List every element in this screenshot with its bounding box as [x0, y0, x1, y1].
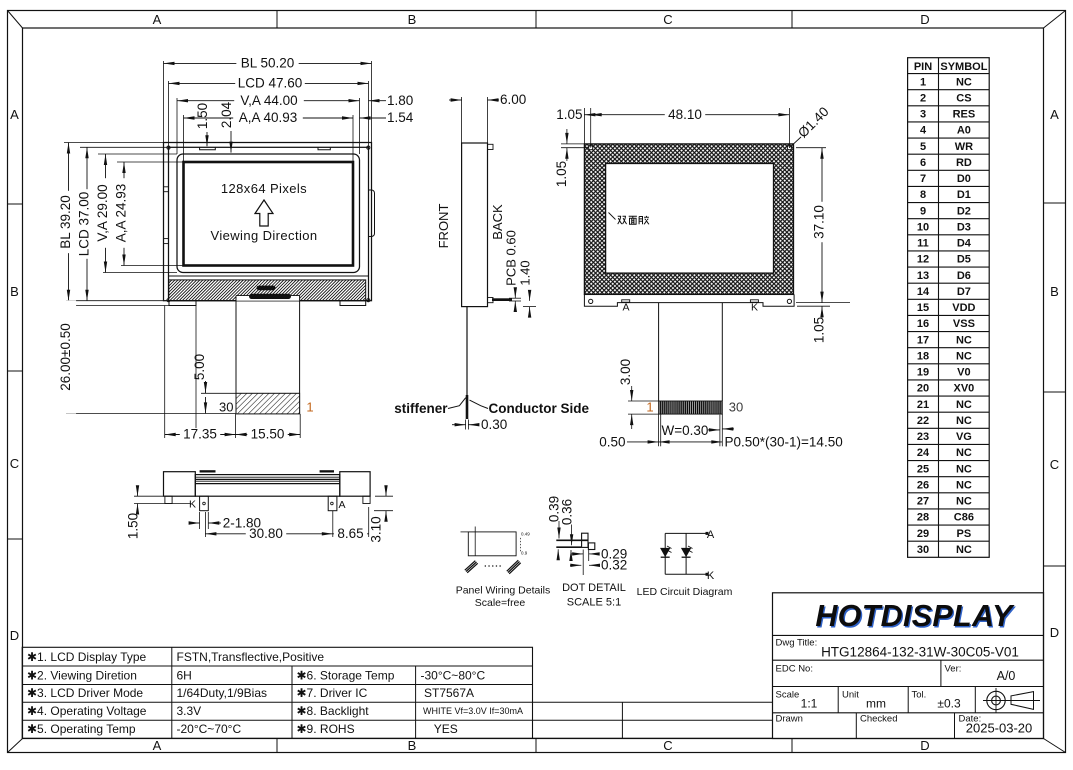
svg-text:D0: D0 — [957, 173, 971, 185]
svg-text:NC: NC — [956, 334, 972, 346]
svg-text:D5: D5 — [957, 254, 971, 266]
svg-text:Scale: Scale — [776, 690, 800, 701]
svg-text:A: A — [1050, 107, 1059, 122]
svg-text:1.50: 1.50 — [126, 513, 141, 539]
svg-text:Drawn: Drawn — [776, 714, 803, 725]
svg-text:3.10: 3.10 — [369, 516, 384, 542]
svg-text:ST7567A: ST7567A — [424, 686, 474, 700]
svg-text:✱8. Backlight: ✱8. Backlight — [297, 704, 370, 718]
svg-text:BL 50.20: BL 50.20 — [241, 56, 295, 71]
svg-text:A,A 24.93: A,A 24.93 — [114, 184, 129, 243]
svg-text:NC: NC — [956, 463, 972, 475]
svg-text:C: C — [663, 12, 672, 27]
svg-text:A0: A0 — [957, 125, 971, 137]
svg-text:3.3V: 3.3V — [177, 704, 202, 718]
svg-text:NC: NC — [956, 544, 972, 556]
svg-text:29: 29 — [917, 528, 929, 540]
svg-text:NC: NC — [956, 76, 972, 88]
svg-text:0.9: 0.9 — [521, 551, 528, 556]
svg-text:15: 15 — [917, 302, 929, 314]
svg-text:K: K — [189, 499, 196, 511]
svg-text:30.80: 30.80 — [249, 526, 283, 541]
svg-text:1.50: 1.50 — [195, 103, 210, 129]
svg-text:25: 25 — [917, 463, 929, 475]
svg-text:VDD: VDD — [952, 302, 975, 314]
svg-text:D7: D7 — [957, 286, 971, 298]
svg-text:D: D — [1050, 625, 1059, 640]
svg-text:17: 17 — [917, 334, 929, 346]
svg-text:±0.3: ±0.3 — [937, 697, 961, 711]
svg-text:1.80: 1.80 — [387, 93, 413, 108]
svg-text:0.36: 0.36 — [560, 499, 575, 525]
svg-text:6: 6 — [920, 157, 926, 169]
svg-text:HTG12864-132-31W-30C05-V01: HTG12864-132-31W-30C05-V01 — [821, 645, 1019, 660]
svg-text:C: C — [663, 738, 672, 753]
svg-text:-20°C~70°C: -20°C~70°C — [177, 722, 242, 736]
svg-text:B: B — [408, 738, 417, 753]
svg-text:23: 23 — [917, 431, 929, 443]
svg-text:FRONT: FRONT — [436, 204, 451, 249]
svg-text:NC: NC — [956, 399, 972, 411]
svg-text:8: 8 — [920, 189, 926, 201]
svg-text:Dwg Title:: Dwg Title: — [776, 638, 818, 649]
svg-text:RD: RD — [956, 157, 972, 169]
svg-text:0.30: 0.30 — [481, 417, 507, 432]
svg-text:PCB 0.60: PCB 0.60 — [503, 230, 518, 286]
svg-text:1.05: 1.05 — [812, 317, 827, 343]
svg-text:5: 5 — [920, 141, 926, 153]
svg-text:26: 26 — [917, 479, 929, 491]
svg-text:NC: NC — [956, 496, 972, 508]
svg-text:21: 21 — [917, 399, 929, 411]
svg-text:K: K — [751, 302, 758, 314]
svg-text:0.49: 0.49 — [521, 532, 530, 537]
svg-text:WHITE Vf=3.0V If=30mA: WHITE Vf=3.0V If=30mA — [423, 706, 523, 716]
svg-text:A: A — [153, 738, 162, 753]
svg-text:Panel Wiring Details: Panel Wiring Details — [456, 585, 551, 597]
svg-text:8.65: 8.65 — [337, 526, 363, 541]
svg-text:✱2. Viewing Diretion: ✱2. Viewing Diretion — [27, 668, 137, 682]
svg-text:D3: D3 — [957, 221, 971, 233]
svg-text:D1: D1 — [957, 189, 971, 201]
svg-text:D4: D4 — [957, 238, 972, 250]
svg-text:1/64Duty,1/9Bias: 1/64Duty,1/9Bias — [177, 686, 268, 700]
svg-text:3: 3 — [920, 109, 926, 121]
svg-text:17.35: 17.35 — [183, 427, 217, 442]
svg-text:SCALE 5:1: SCALE 5:1 — [567, 597, 621, 609]
svg-text:V,A 29.00: V,A 29.00 — [95, 184, 110, 241]
svg-text:37.10: 37.10 — [812, 205, 827, 239]
svg-text:Scale=free: Scale=free — [475, 597, 526, 609]
svg-text:VG: VG — [956, 431, 972, 443]
svg-text:-30°C~80°C: -30°C~80°C — [421, 668, 486, 682]
svg-text:D6: D6 — [957, 270, 971, 282]
svg-text:1: 1 — [646, 400, 653, 415]
svg-text:✱6. Storage Temp: ✱6. Storage Temp — [297, 668, 395, 682]
svg-text:A/0: A/0 — [997, 669, 1016, 683]
svg-text:0.50: 0.50 — [599, 434, 625, 449]
svg-text:C86: C86 — [954, 512, 974, 524]
svg-text:LCD 47.60: LCD 47.60 — [238, 76, 303, 91]
svg-text:D: D — [10, 628, 19, 643]
svg-text:✱9. ROHS: ✱9. ROHS — [297, 722, 355, 736]
svg-text:RES: RES — [953, 109, 976, 121]
svg-text:2.04: 2.04 — [219, 101, 234, 128]
svg-text:A: A — [707, 529, 715, 541]
svg-text:1: 1 — [920, 76, 926, 88]
svg-text:14: 14 — [917, 286, 930, 298]
svg-text:V,A 44.00: V,A 44.00 — [240, 93, 297, 108]
svg-text:30: 30 — [917, 544, 929, 556]
svg-text:WR: WR — [955, 141, 973, 153]
svg-text:W=0.30: W=0.30 — [662, 423, 709, 438]
svg-text:VSS: VSS — [953, 318, 975, 330]
svg-text:C: C — [10, 456, 19, 471]
svg-text:18: 18 — [917, 350, 929, 362]
svg-text:5.00: 5.00 — [192, 354, 207, 380]
svg-text:3.00: 3.00 — [618, 359, 633, 385]
svg-text:XV0: XV0 — [954, 383, 975, 395]
svg-text:BL 39.20: BL 39.20 — [58, 195, 73, 249]
svg-text:1: 1 — [306, 400, 313, 415]
svg-text:B: B — [1050, 284, 1059, 299]
svg-text:Conductor Side: Conductor Side — [489, 401, 590, 416]
svg-text:✱4. Operating Voltage: ✱4. Operating Voltage — [27, 704, 147, 718]
svg-text:4: 4 — [920, 125, 927, 137]
svg-text:1:1: 1:1 — [801, 697, 818, 711]
svg-text:C: C — [1050, 457, 1059, 472]
svg-text:NC: NC — [956, 479, 972, 491]
svg-text:7: 7 — [920, 173, 926, 185]
svg-text:10: 10 — [917, 221, 929, 233]
svg-text:Checked: Checked — [860, 714, 898, 725]
svg-text:EDC No:: EDC No: — [776, 664, 813, 675]
svg-text:FSTN,Transflective,Positive: FSTN,Transflective,Positive — [177, 650, 325, 664]
svg-text:A: A — [153, 12, 162, 27]
svg-text:11: 11 — [917, 238, 929, 250]
svg-text:LED Circuit Diagram: LED Circuit Diagram — [637, 586, 733, 598]
svg-text:LCD 37.00: LCD 37.00 — [77, 192, 92, 257]
svg-text:1.05: 1.05 — [556, 107, 582, 122]
svg-text:26.00±0.50: 26.00±0.50 — [58, 323, 73, 390]
svg-text:30: 30 — [219, 400, 233, 415]
svg-text:2: 2 — [920, 92, 926, 104]
svg-text:A,A 40.93: A,A 40.93 — [239, 110, 298, 125]
svg-text:PIN: PIN — [914, 61, 932, 73]
svg-text:0.32: 0.32 — [601, 558, 627, 573]
svg-text:✱3. LCD Driver Mode: ✱3. LCD Driver Mode — [27, 686, 143, 700]
svg-text:B: B — [408, 12, 417, 27]
svg-text:Unit: Unit — [842, 690, 859, 701]
svg-text:D2: D2 — [957, 205, 971, 217]
svg-text:22: 22 — [917, 415, 929, 427]
svg-text:27: 27 — [917, 496, 929, 508]
svg-text:NC: NC — [956, 415, 972, 427]
svg-text:D: D — [920, 12, 929, 27]
svg-text:20: 20 — [917, 383, 929, 395]
svg-text:6H: 6H — [177, 668, 192, 682]
svg-text:12: 12 — [917, 254, 929, 266]
svg-text:SYMBOL: SYMBOL — [940, 61, 987, 73]
svg-text:1.54: 1.54 — [387, 110, 414, 125]
svg-text:1.40: 1.40 — [518, 260, 533, 285]
svg-text:Ver:: Ver: — [945, 664, 962, 675]
svg-text:D: D — [920, 738, 929, 753]
svg-text:30: 30 — [729, 400, 743, 415]
svg-text:✱7. Driver IC: ✱7. Driver IC — [297, 686, 368, 700]
svg-text:48.10: 48.10 — [668, 107, 702, 122]
svg-text:K: K — [707, 570, 715, 582]
svg-text:15.50: 15.50 — [251, 427, 285, 442]
svg-text:YES: YES — [434, 722, 458, 736]
svg-text:HOTDISPLAY: HOTDISPLAY — [815, 599, 1015, 633]
svg-text:P0.50*(30-1)=14.50: P0.50*(30-1)=14.50 — [725, 434, 843, 449]
svg-text:CS: CS — [956, 92, 971, 104]
svg-text:NC: NC — [956, 350, 972, 362]
svg-text:NC: NC — [956, 447, 972, 459]
svg-text:✱1. LCD Display Type: ✱1. LCD Display Type — [27, 650, 147, 664]
svg-text:24: 24 — [917, 447, 930, 459]
svg-text:DOT DETAIL: DOT DETAIL — [562, 582, 626, 594]
svg-text:6.00: 6.00 — [500, 92, 526, 107]
svg-text:Viewing Direction: Viewing Direction — [211, 228, 318, 243]
svg-text:1.05: 1.05 — [554, 161, 569, 187]
svg-text:PS: PS — [957, 528, 972, 540]
svg-text:9: 9 — [920, 205, 926, 217]
svg-text:13: 13 — [917, 270, 929, 282]
svg-text:28: 28 — [917, 512, 929, 524]
svg-text:V0: V0 — [957, 367, 970, 379]
svg-text:mm: mm — [866, 697, 886, 711]
svg-text:B: B — [10, 284, 19, 299]
svg-text:16: 16 — [917, 318, 929, 330]
svg-text:2025-03-20: 2025-03-20 — [966, 721, 1033, 736]
svg-text:128x64 Pixels: 128x64 Pixels — [221, 181, 307, 196]
svg-text:A: A — [10, 107, 19, 122]
svg-text:✱5. Operating Temp: ✱5. Operating Temp — [27, 722, 136, 736]
svg-text:Tol.: Tol. — [912, 690, 927, 701]
svg-text:A: A — [622, 302, 629, 314]
svg-text:stiffener: stiffener — [394, 401, 448, 416]
svg-text:19: 19 — [917, 367, 929, 379]
svg-text:A: A — [338, 499, 345, 511]
